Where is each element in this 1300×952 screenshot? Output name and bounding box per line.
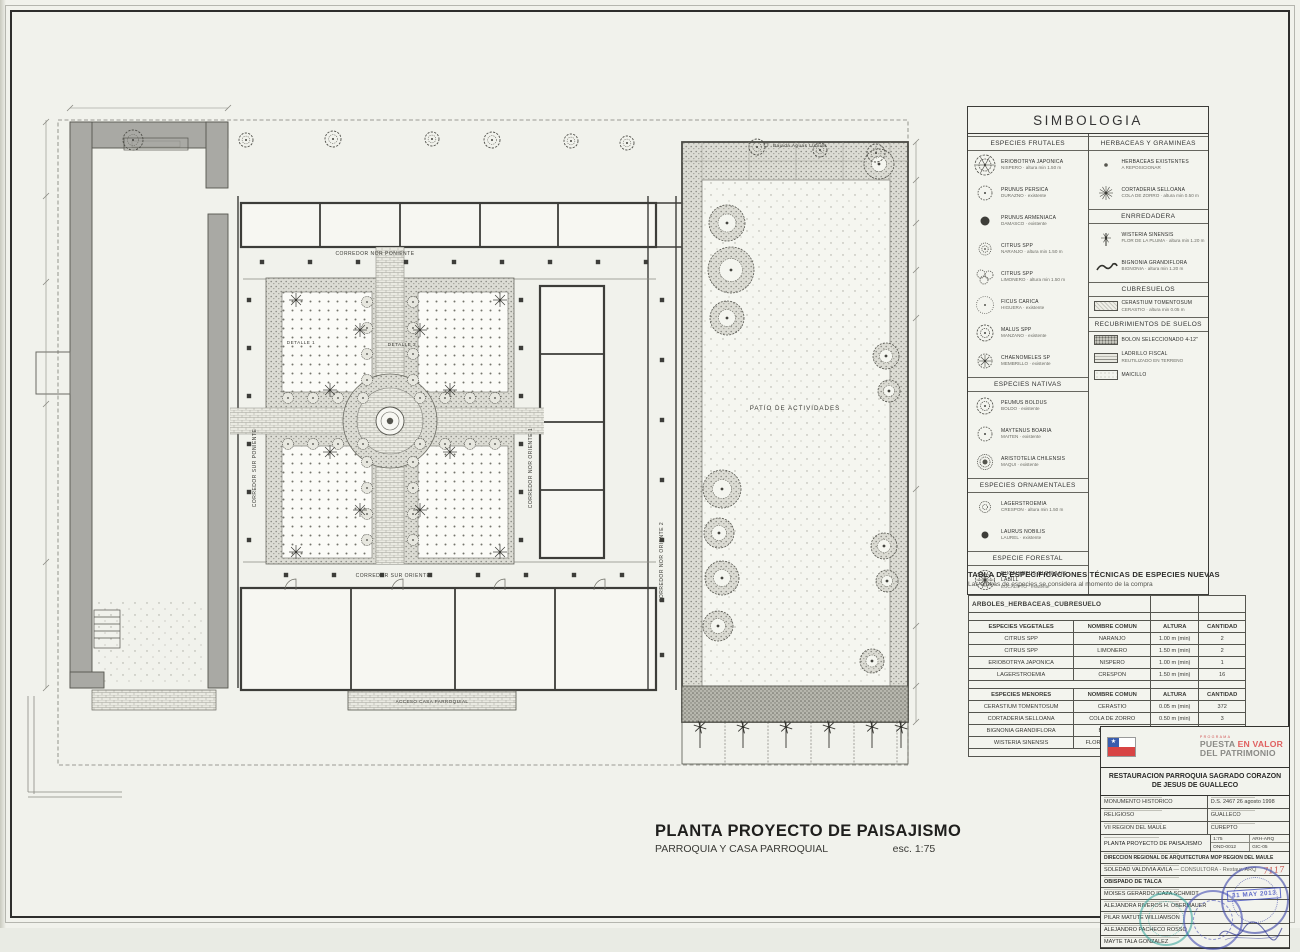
legend-species-detail: NARANJO · altura min 1.50 m xyxy=(1001,249,1063,255)
ornamental-plant-symbol xyxy=(413,503,427,517)
signer-name: MAYTE TALA GONZALEZ xyxy=(1101,936,1289,948)
shrub-symbol xyxy=(362,349,373,360)
legend-species-detail: MEMBRILLO · existente xyxy=(1001,361,1051,367)
corridor-column xyxy=(519,490,523,494)
legend-species-detail: MAQUI · existente xyxy=(1001,462,1065,468)
spec-cell: ALTURA xyxy=(1151,621,1199,633)
tree-symbol xyxy=(704,518,734,548)
plan-name-row: PLANTA PROYECTO DE PAISAJISMO 1:75 ARH-A… xyxy=(1101,835,1289,852)
ornamental-plant-symbol xyxy=(443,445,457,459)
legend-item: CERASTIUM TOMENTOSUMCERASTIO · altura mi… xyxy=(1089,297,1209,315)
corridor-column xyxy=(572,573,576,577)
title-block-field-left: MONUMENTO HISTORICO xyxy=(1101,796,1208,808)
corridor-column xyxy=(247,442,251,446)
legend-tree-fluffy-icon xyxy=(973,322,997,344)
legend-item-text: CHAENOMELES SPMEMBRILLO · existente xyxy=(1001,355,1051,367)
title-block-info-rows: MONUMENTO HISTORICOD.S. 2467 26 agosto 1… xyxy=(1101,796,1289,835)
spec-cell xyxy=(969,681,1151,689)
corridor-column xyxy=(247,394,251,398)
vine-plant-symbol xyxy=(823,721,835,748)
legend-species-detail: BOLDO · existente xyxy=(1001,406,1047,412)
legend-section-title: ESPECIE FORESTAL xyxy=(968,551,1088,566)
legend-section-title: HERBACEAS Y GRAMINEAS xyxy=(1089,136,1209,151)
corridor-column xyxy=(247,298,251,302)
shrub-symbol xyxy=(415,439,426,450)
legend-vine1-icon xyxy=(1094,227,1118,249)
legend-item-icon xyxy=(1094,182,1118,204)
shrub-symbol xyxy=(358,393,369,404)
shrub-symbol xyxy=(415,393,426,404)
corridor-column xyxy=(260,260,264,264)
legend-item-text: PRUNUS ARMENIACADAMASCO · existente xyxy=(1001,215,1056,227)
title-block: ★ PROGRAMA PUESTA EN VALOR DEL PATRIMONI… xyxy=(1100,726,1290,949)
tree-symbol xyxy=(425,132,439,146)
title-block-field-right: GUALLECO xyxy=(1208,809,1289,821)
legend-section: ESPECIES ORNAMENTALESLAGERSTROEMIACRESPO… xyxy=(968,478,1088,549)
spec-row: ESPECIES MENORESNOMBRE COMUNALTURACANTID… xyxy=(969,689,1246,701)
legend-item-text: LAURUS NOBILISLAUREL · existente xyxy=(1001,529,1045,541)
plan-label-corredor_nor_oriente_2: CORREDOR NOR ORIENTE 2 xyxy=(659,522,665,602)
legend-grass-icon xyxy=(1094,182,1118,204)
tree-symbol xyxy=(708,247,754,293)
ornamental-plant-symbol xyxy=(353,503,367,517)
title-block-field-right: D.S. 2467 26 agosto 1998 xyxy=(1208,796,1289,808)
spec-cell: 2 xyxy=(1199,645,1246,657)
legend-item-text: PEUMUS BOLDUSBOLDO · existente xyxy=(1001,400,1047,412)
legend-item: PRUNUS ARMENIACADAMASCO · existente xyxy=(968,207,1088,235)
tree-symbol xyxy=(860,649,884,673)
corridor-column xyxy=(620,573,624,577)
chile-flag-icon: ★ xyxy=(1107,737,1136,757)
program-line2: DEL PATRIMONIO xyxy=(1200,749,1283,758)
plan-label-acceso: ACCESO CASA PARROQUIAL xyxy=(396,699,469,704)
legend-item-text: MAICILLO xyxy=(1122,372,1147,379)
corridor-column xyxy=(644,260,648,264)
plan-label-bajada_aguas: Bajada Aguas Lluvias xyxy=(773,143,827,148)
legend-section: ENRREDADERAWISTERIA SINENSISFLOR DE LA P… xyxy=(1089,209,1209,280)
shrub-symbol xyxy=(283,439,294,450)
spec-cell: LIMONERO xyxy=(1074,645,1151,657)
tree-symbol xyxy=(484,132,500,148)
spec-cell: CITRUS SPP xyxy=(969,645,1074,657)
title-block-field-left: RELIGIOSO xyxy=(1101,809,1208,821)
legend-item-icon xyxy=(973,294,997,316)
spec-row: ESPECIES VEGETALESNOMBRE COMUNALTURACANT… xyxy=(969,621,1246,633)
legend-item-text: PRUNUS PERSICADURAZNO · existente xyxy=(1001,187,1048,199)
spec-cell: NARANJO xyxy=(1074,633,1151,645)
legend-item-icon xyxy=(973,154,997,176)
plan-code-cells: 1:75 ARH-ARQ OND-0012 GIC-05 xyxy=(1211,835,1289,851)
sheet-title: PLANTA PROYECTO DE PAISAJISMO PARROQUIA … xyxy=(655,822,961,855)
owner-row: OBISPADO DE TALCA xyxy=(1101,876,1289,888)
ornamental-plant-symbol xyxy=(323,383,337,397)
legend-item-icon xyxy=(1094,227,1118,249)
legend-item-icon xyxy=(973,496,997,518)
corridor-column xyxy=(548,260,552,264)
legend-item-text: FICUS CARICAHIGUERA · existente xyxy=(1001,299,1044,311)
legend-tree-scallop-icon xyxy=(973,423,997,445)
legend-item-icon xyxy=(973,350,997,372)
legend-item: LAGERSTROEMIACRESPON · altura min 1.50 m xyxy=(968,493,1088,521)
spec-row xyxy=(969,613,1246,621)
spec-cell: 1.00 m (min) xyxy=(1151,633,1199,645)
spec-table-subtitle: Las alturas de especies se considera al … xyxy=(968,581,1246,588)
shrub-symbol xyxy=(283,393,294,404)
spec-row: CITRUS SPPLIMONERO1.50 m (min)2 xyxy=(969,645,1246,657)
legend-species-name: CERASTIUM TOMENTOSUM xyxy=(1122,300,1193,307)
legend-item-icon xyxy=(973,266,997,288)
spec-cell: 1.00 m (min) xyxy=(1151,657,1199,669)
legend-column-right: HERBACEAS Y GRAMINEASHERBACEAS EXISTENTE… xyxy=(1089,134,1209,594)
spec-cell: ERIOBOTRYA JAPONICA xyxy=(969,657,1074,669)
consultora-row: SOLEDAD VALDIVIA AVILA — CONSULTORA - Re… xyxy=(1101,864,1289,876)
corridor-column xyxy=(308,260,312,264)
legend-item-text: WISTERIA SINENSISFLOR DE LA PLUMA · altu… xyxy=(1122,232,1205,244)
project-title: RESTAURACION PARROQUIA SAGRADO CORAZON D… xyxy=(1101,768,1289,796)
spec-cell xyxy=(1199,681,1246,689)
legend-item-icon xyxy=(973,210,997,232)
signer-name: ALEJANDRO PACHECO ROSSO xyxy=(1101,924,1289,936)
shrub-symbol xyxy=(362,457,373,468)
corridor-column xyxy=(519,346,523,350)
ornamental-plant-symbol xyxy=(493,545,507,559)
ornamental-plant-symbol xyxy=(443,383,457,397)
ornamental-plant-symbol xyxy=(413,323,427,337)
legend-section: ESPECIES FRUTALESERIOBOTRYA JAPONICANISP… xyxy=(968,136,1088,375)
shrub-symbol xyxy=(362,375,373,386)
shrub-symbol xyxy=(408,375,419,386)
spec-cell xyxy=(969,613,1151,621)
plan-label-corredor_sur_poniente: CORREDOR SUR PONIENTE xyxy=(252,429,258,508)
code1-cell: ARH-ARQ xyxy=(1250,835,1289,843)
plan-name-cell: PLANTA PROYECTO DE PAISAJISMO xyxy=(1101,835,1211,851)
spec-row: ERIOBOTRYA JAPONICANISPERO1.00 m (min)1 xyxy=(969,657,1246,669)
legend-item-icon xyxy=(973,182,997,204)
legend-species-detail: COLA DE ZORRO · altura min 0.50 m xyxy=(1122,193,1199,199)
spec-cell: NOMBRE COMUN xyxy=(1074,621,1151,633)
shrub-symbol xyxy=(408,483,419,494)
legend-item-icon xyxy=(973,322,997,344)
title-block-row: VII REGION DEL MAULECUREPTO xyxy=(1101,822,1289,835)
spec-table-title: TABLA DE ESPECIFICACIONES TÉCNICAS DE ES… xyxy=(968,570,1246,579)
spec-cell xyxy=(1151,681,1199,689)
legend-section: ESPECIES NATIVASPEUMUS BOLDUSBOLDO · exi… xyxy=(968,377,1088,476)
ornamental-plant-symbol xyxy=(289,293,303,307)
shrub-symbol xyxy=(490,393,501,404)
scale-cell: 1:75 xyxy=(1211,835,1250,843)
legend-item-icon xyxy=(973,423,997,445)
legend-item: CHAENOMELES SPMEMBRILLO · existente xyxy=(968,347,1088,375)
plan-label-corredor_nor_oriente_1: CORREDOR NOR ORIENTE 1 xyxy=(528,428,534,508)
legend-species-detail: BIGNONIA · altura min 1.20 m xyxy=(1122,266,1188,272)
legend-item: ARISTOTELIA CHILENSISMAQUI · existente xyxy=(968,448,1088,476)
legend-swatch-sw-maicillo xyxy=(1094,370,1118,380)
shrub-symbol xyxy=(408,323,419,334)
legend-item-text: CERASTIUM TOMENTOSUMCERASTIO · altura mi… xyxy=(1122,300,1193,312)
title-block-field-left: VII REGION DEL MAULE xyxy=(1101,822,1208,834)
legend-species-detail: CERASTIO · altura min 0.05 m xyxy=(1122,307,1193,313)
program-logo-row: ★ PROGRAMA PUESTA EN VALOR DEL PATRIMONI… xyxy=(1101,727,1289,768)
tree-symbol xyxy=(325,131,341,147)
legend-item: BIGNONIA GRANDIFLORABIGNONIA · altura mi… xyxy=(1089,252,1209,280)
shrub-symbol xyxy=(408,535,419,546)
legend-swatch-sw-ladrillo xyxy=(1094,353,1118,363)
legend-item-text: HERBACEAS EXISTENTESA REPOSICIONAR xyxy=(1122,159,1189,171)
legend-item-icon xyxy=(1094,255,1118,277)
legend-tree-fluffy-icon xyxy=(973,395,997,417)
legend-species-detail: MANZANO · existente xyxy=(1001,333,1046,339)
shrub-symbol xyxy=(440,439,451,450)
legend-item-text: CITRUS SPPLIMONERO · altura min 1.50 m xyxy=(1001,271,1065,283)
vine-plant-symbol xyxy=(694,721,706,748)
vine-plant-symbol xyxy=(895,721,907,748)
legend-item: CORTADERIA SELLOANACOLA DE ZORRO · altur… xyxy=(1089,179,1209,207)
symbology-legend: SIMBOLOGIA ESPECIES FRUTALESERIOBOTRYA J… xyxy=(967,106,1209,595)
corridor-column xyxy=(404,260,408,264)
shrub-symbol xyxy=(362,323,373,334)
tree-symbol xyxy=(705,561,739,595)
corridor-column xyxy=(519,298,523,302)
corridor-column xyxy=(660,478,664,482)
legend-swatch-sw-cerastio xyxy=(1094,301,1118,311)
plan-label-patio: PATIO DE ACTIVIDADES xyxy=(750,405,841,412)
legend-section-title: RECUBRIMIENTOS DE SUELOS xyxy=(1089,317,1209,332)
corridor-column xyxy=(660,358,664,362)
legend-item-text: MAYTENUS BOARIAMAITEN · existente xyxy=(1001,428,1052,440)
legend-section: CUBRESUELOSCERASTIUM TOMENTOSUMCERASTIO … xyxy=(1089,282,1209,315)
legend-shrub-ring-icon xyxy=(973,496,997,518)
tree-symbol xyxy=(876,570,898,592)
tree-symbol xyxy=(239,133,253,147)
spec-row: ARBOLES_HERBACEAS_CUBRESUELO xyxy=(969,596,1246,613)
legend-item-icon xyxy=(1094,353,1118,363)
ornamental-plant-symbol xyxy=(493,293,507,307)
legend-item-icon xyxy=(973,395,997,417)
spec-row: CERASTIUM TOMENTOSUMCERASTIO0.05 m (min)… xyxy=(969,701,1246,713)
legend-tree-cluster-icon xyxy=(973,266,997,288)
spec-cell: 1.50 m (min) xyxy=(1151,669,1199,681)
legend-section-title: ENRREDADERA xyxy=(1089,209,1209,224)
consultora-name: SOLEDAD VALDIVIA AVILA xyxy=(1104,867,1172,873)
spec-cell: 2 xyxy=(1199,633,1246,645)
spec-cell: CERASTIO xyxy=(1074,701,1151,713)
church-building xyxy=(36,122,228,710)
plan-label-detalle_2: DETALLE 2 xyxy=(388,342,416,347)
legend-tree-scallop-icon xyxy=(973,182,997,204)
legend-species-detail: A REPOSICIONAR xyxy=(1122,165,1189,171)
vine-plant-symbol xyxy=(737,721,749,748)
legend-species-name: BOLON SELECCIONADO 4-12" xyxy=(1122,337,1199,344)
legend-species-detail: LAUREL · existente xyxy=(1001,535,1045,541)
shrub-symbol xyxy=(408,457,419,468)
legend-species-detail: FLOR DE LA PLUMA · altura min 1.20 m xyxy=(1122,238,1205,244)
corridor-column xyxy=(519,538,523,542)
legend-item-text: ERIOBOTRYA JAPONICANISPERO · altura min … xyxy=(1001,159,1063,171)
legend-item-icon xyxy=(973,238,997,260)
legend-tree-star-icon xyxy=(973,350,997,372)
legend-item: MAYTENUS BOARIAMAITEN · existente xyxy=(968,420,1088,448)
tree-symbol xyxy=(873,343,899,369)
legend-vine2-icon xyxy=(1094,255,1118,277)
legend-section: RECUBRIMIENTOS DE SUELOSBOLON SELECCIONA… xyxy=(1089,317,1209,382)
spec-cell: BIGNONIA GRANDIFLORA xyxy=(969,725,1074,737)
spec-cell: WISTERIA SINENSIS xyxy=(969,737,1074,749)
legend-item-text: CITRUS SPPNARANJO · altura min 1.50 m xyxy=(1001,243,1063,255)
legend-dot-herb-icon xyxy=(1094,154,1118,176)
legend-item-icon xyxy=(1094,301,1118,311)
legend-item: FICUS CARICAHIGUERA · existente xyxy=(968,291,1088,319)
legend-item: PRUNUS PERSICADURAZNO · existente xyxy=(968,179,1088,207)
legend-dot-laurel-icon xyxy=(973,524,997,546)
legend-item: MALUS SPPMANZANO · existente xyxy=(968,319,1088,347)
tree-symbol xyxy=(710,301,744,335)
spec-cell: COLA DE ZORRO xyxy=(1074,713,1151,725)
corridor-column xyxy=(247,538,251,542)
spec-cell: 16 xyxy=(1199,669,1246,681)
dimension-line xyxy=(913,139,919,725)
program-logo-text: PROGRAMA PUESTA EN VALOR DEL PATRIMONIO xyxy=(1200,736,1283,757)
spec-cell: CITRUS SPP xyxy=(969,633,1074,645)
spec-cell: 1.50 m (min) xyxy=(1151,645,1199,657)
legend-item-text: CORTADERIA SELLOANACOLA DE ZORRO · altur… xyxy=(1122,187,1199,199)
legend-item: LADRILLO FISCALREUTILIZADO EN TERRENO xyxy=(1089,348,1209,366)
signer-name: PILAR MATUTE WILLIAMSON xyxy=(1101,912,1289,924)
mandante-row: DIRECCION REGIONAL DE ARQUITECTURA MOP R… xyxy=(1101,852,1289,864)
corridor-column xyxy=(247,490,251,494)
shrub-symbol xyxy=(465,439,476,450)
ornamental-plant-symbol xyxy=(289,545,303,559)
spec-cell: 0.05 m (min) xyxy=(1151,701,1199,713)
shrub-symbol xyxy=(465,393,476,404)
spec-row: CORTADERIA SELLOANACOLA DE ZORRO0.50 m (… xyxy=(969,713,1246,725)
legend-item-text: LAGERSTROEMIACRESPON · altura min 1.50 m xyxy=(1001,501,1063,513)
legend-section: HERBACEAS Y GRAMINEASHERBACEAS EXISTENTE… xyxy=(1089,136,1209,207)
signer-rows: MOISES GERARDO ICAZA SCHMIDTALEJANDRA RI… xyxy=(1101,888,1289,948)
spec-cell: NOMBRE COMUN xyxy=(1074,689,1151,701)
legend-species-detail: LIMONERO · altura min 1.50 m xyxy=(1001,277,1065,283)
title-block-field-right: CUREPTO xyxy=(1208,822,1289,834)
plan-label-corredor_nor_poniente: CORREDOR NOR PONIENTE xyxy=(335,251,414,257)
legend-species-detail: REUTILIZADO EN TERRENO xyxy=(1122,358,1184,364)
legend-item-text: BIGNONIA GRANDIFLORABIGNONIA · altura mi… xyxy=(1122,260,1188,272)
legend-item: ERIOBOTRYA JAPONICANISPERO · altura min … xyxy=(968,151,1088,179)
drawing-sheet: CORREDOR NOR PONIENTECORREDOR SUR PONIEN… xyxy=(0,0,1300,928)
spec-cell: LAGERSTROEMIA xyxy=(969,669,1074,681)
legend-tree-dense-icon xyxy=(973,451,997,473)
corridor-column xyxy=(660,298,664,302)
corridor-column xyxy=(524,573,528,577)
legend-section-title: CUBRESUELOS xyxy=(1089,282,1209,297)
spec-cell: CANTIDAD xyxy=(1199,621,1246,633)
spec-cell: ESPECIES MENORES xyxy=(969,689,1074,701)
legend-item-icon xyxy=(973,451,997,473)
signer-name: MOISES GERARDO ICAZA SCHMIDT xyxy=(1101,888,1289,900)
cloister-garden xyxy=(230,247,544,564)
dimension-line xyxy=(43,119,49,691)
legend-item: PEUMUS BOLDUSBOLDO · existente xyxy=(968,392,1088,420)
corridor-column xyxy=(247,346,251,350)
shrub-symbol xyxy=(358,439,369,450)
tree-symbol xyxy=(864,149,894,179)
code3-cell: GIC-05 xyxy=(1250,843,1289,851)
corridor-column xyxy=(284,573,288,577)
tree-symbol xyxy=(703,470,741,508)
legend-item: LAURUS NOBILISLAUREL · existente xyxy=(968,521,1088,549)
legend-item: HERBACEAS EXISTENTESA REPOSICIONAR xyxy=(1089,151,1209,179)
code2-cell: OND-0012 xyxy=(1211,843,1250,851)
corridor-column xyxy=(519,442,523,446)
legend-species-name: MAICILLO xyxy=(1122,372,1147,379)
legend-item-text: LADRILLO FISCALREUTILIZADO EN TERRENO xyxy=(1122,351,1184,363)
shrub-symbol xyxy=(308,439,319,450)
spec-cell: CRESPON xyxy=(1074,669,1151,681)
legend-item-text: ARISTOTELIA CHILENSISMAQUI · existente xyxy=(1001,456,1065,468)
tree-symbol xyxy=(709,205,745,241)
legend-tree-xl-icon xyxy=(973,154,997,176)
legend-dot-dark-icon xyxy=(973,210,997,232)
corridor-column xyxy=(476,573,480,577)
legend-species-detail: HIGUERA · existente xyxy=(1001,305,1044,311)
shrub-symbol xyxy=(490,439,501,450)
legend-species-detail: MAITEN · existente xyxy=(1001,434,1052,440)
legend-column-left: ESPECIES FRUTALESERIOBOTRYA JAPONICANISP… xyxy=(968,134,1089,594)
ornamental-plant-symbol xyxy=(353,323,367,337)
legend-section-title: ESPECIES NATIVAS xyxy=(968,377,1088,392)
tree-symbol xyxy=(564,134,578,148)
spec-cell: ALTURA xyxy=(1151,689,1199,701)
title-block-row: RELIGIOSOGUALLECO xyxy=(1101,809,1289,822)
legend-swatch-sw-bolon xyxy=(1094,335,1118,345)
spec-cell: ESPECIES VEGETALES xyxy=(969,621,1074,633)
spec-cell xyxy=(1199,613,1246,621)
legend-species-detail: DURAZNO · existente xyxy=(1001,193,1048,199)
tree-symbol xyxy=(703,611,733,641)
shrub-symbol xyxy=(440,393,451,404)
spec-cell xyxy=(1199,596,1246,613)
ornamental-plant-symbol xyxy=(323,445,337,459)
corridor-column xyxy=(660,418,664,422)
shrub-symbol xyxy=(362,297,373,308)
corridor-column xyxy=(596,260,600,264)
spec-cell: 372 xyxy=(1199,701,1246,713)
dimension-line xyxy=(67,105,231,111)
shrub-symbol xyxy=(408,297,419,308)
shrub-symbol xyxy=(408,349,419,360)
shrub-symbol xyxy=(362,535,373,546)
spec-cell: 3 xyxy=(1199,713,1246,725)
legend-tree-swirl-icon xyxy=(973,238,997,260)
shrub-symbol xyxy=(308,393,319,404)
spec-cell xyxy=(1151,596,1199,613)
legend-item: CITRUS SPPNARANJO · altura min 1.50 m xyxy=(968,235,1088,263)
legend-item: BOLON SELECCIONADO 4-12" xyxy=(1089,332,1209,348)
legend-item: CITRUS SPPLIMONERO · altura min 1.50 m xyxy=(968,263,1088,291)
vine-pergola xyxy=(682,722,908,764)
consultora-suffix: — CONSULTORA - Restaur. ARQ xyxy=(1172,867,1256,873)
spec-cell xyxy=(1151,613,1199,621)
spec-cell: NISPERO xyxy=(1074,657,1151,669)
tree-symbol xyxy=(620,136,634,150)
signer-name: ALEJANDRA RIVEROS H. OBERMAUER xyxy=(1101,900,1289,912)
corridor-column xyxy=(452,260,456,264)
legend-item-icon xyxy=(1094,370,1118,380)
title-block-row: MONUMENTO HISTORICOD.S. 2467 26 agosto 1… xyxy=(1101,796,1289,809)
spec-cell: CORTADERIA SELLOANA xyxy=(969,713,1074,725)
spec-row: CITRUS SPPNARANJO1.00 m (min)2 xyxy=(969,633,1246,645)
legend-species-detail: DAMASCO · existente xyxy=(1001,221,1056,227)
vine-plant-symbol xyxy=(866,721,878,748)
legend-item: MAICILLO xyxy=(1089,367,1209,383)
